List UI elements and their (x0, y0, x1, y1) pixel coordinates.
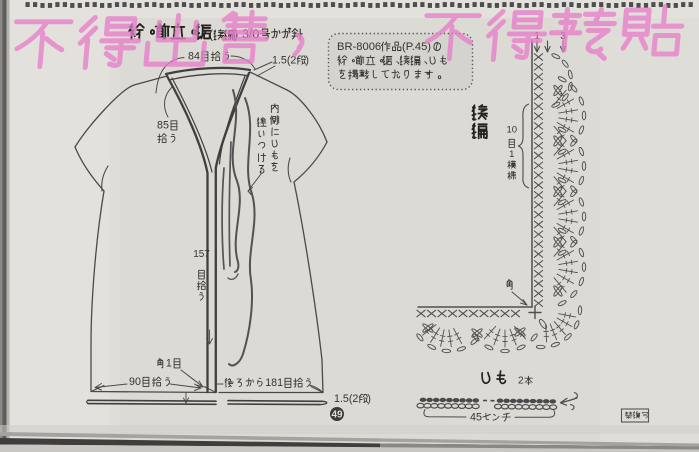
svg-text:181: 181 (265, 377, 283, 389)
svg-text:2: 2 (518, 376, 524, 387)
svg-text:84: 84 (188, 50, 200, 62)
svg-text:BR-8006: BR-8006 (337, 41, 381, 53)
svg-text:1.5(2: 1.5(2 (334, 393, 358, 405)
svg-text:10: 10 (507, 124, 518, 135)
svg-text:1: 1 (509, 149, 514, 160)
svg-text:49: 49 (331, 410, 343, 421)
svg-text:): ) (367, 393, 371, 405)
svg-text:90: 90 (129, 376, 141, 388)
svg-text:45: 45 (470, 411, 482, 423)
svg-text:157: 157 (193, 249, 210, 260)
svg-text:85: 85 (157, 119, 169, 131)
svg-text:1: 1 (166, 357, 172, 369)
svg-text:): ) (305, 54, 309, 66)
svg-text:(: ( (209, 28, 213, 42)
